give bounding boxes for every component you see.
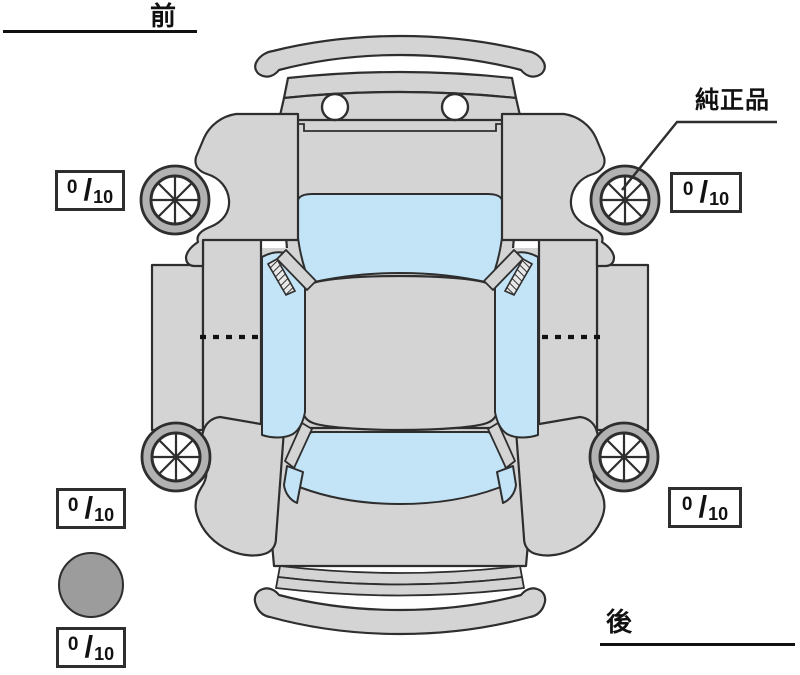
tread-numerator: 0: [682, 495, 693, 514]
cowl-circle-left: [322, 94, 348, 120]
tread-numerator: 0: [68, 635, 79, 654]
tread-numerator: 0: [683, 180, 694, 199]
tread-box-spare: 0/10: [56, 627, 126, 668]
tread-slash: /: [84, 495, 93, 521]
tread-denominator: 10: [93, 188, 113, 206]
roof-panel: [301, 276, 499, 430]
front-underline: [3, 30, 197, 33]
tread-box-rear-left: 0/10: [56, 488, 126, 529]
tread-box-rear-right: 0/10: [668, 487, 742, 528]
tread-denominator: 10: [94, 506, 114, 524]
genuine-part-label: 純正品: [695, 89, 770, 113]
tread-box-front-left: 0/10: [55, 170, 125, 211]
tread-numerator: 0: [67, 178, 78, 197]
tread-slash: /: [84, 634, 93, 660]
front-bumper: [255, 36, 545, 77]
vehicle-condition-diagram: 前 純正品 後 0/10 0/10 0/10 0/10 0/10: [0, 0, 800, 675]
tread-denominator: 10: [708, 505, 728, 523]
front-right-wheel: [591, 166, 659, 234]
tread-denominator: 10: [94, 645, 114, 663]
spare-tire-icon: [58, 552, 124, 618]
tread-slash: /: [83, 177, 92, 203]
cowl-circle-right: [442, 94, 468, 120]
rear-label: 後: [606, 609, 632, 635]
rear-left-wheel: [142, 423, 210, 491]
tread-numerator: 0: [68, 496, 79, 515]
tread-box-front-right: 0/10: [670, 172, 742, 213]
rear-underline: [600, 643, 795, 646]
tread-denominator: 10: [709, 190, 729, 208]
tread-slash: /: [699, 179, 708, 205]
tread-slash: /: [698, 494, 707, 520]
front-left-wheel: [141, 166, 209, 234]
windshield: [296, 194, 504, 283]
cowl-band-lower: [279, 92, 521, 120]
rear-window: [292, 432, 507, 504]
rear-right-wheel: [590, 423, 658, 491]
front-label: 前: [150, 3, 176, 29]
